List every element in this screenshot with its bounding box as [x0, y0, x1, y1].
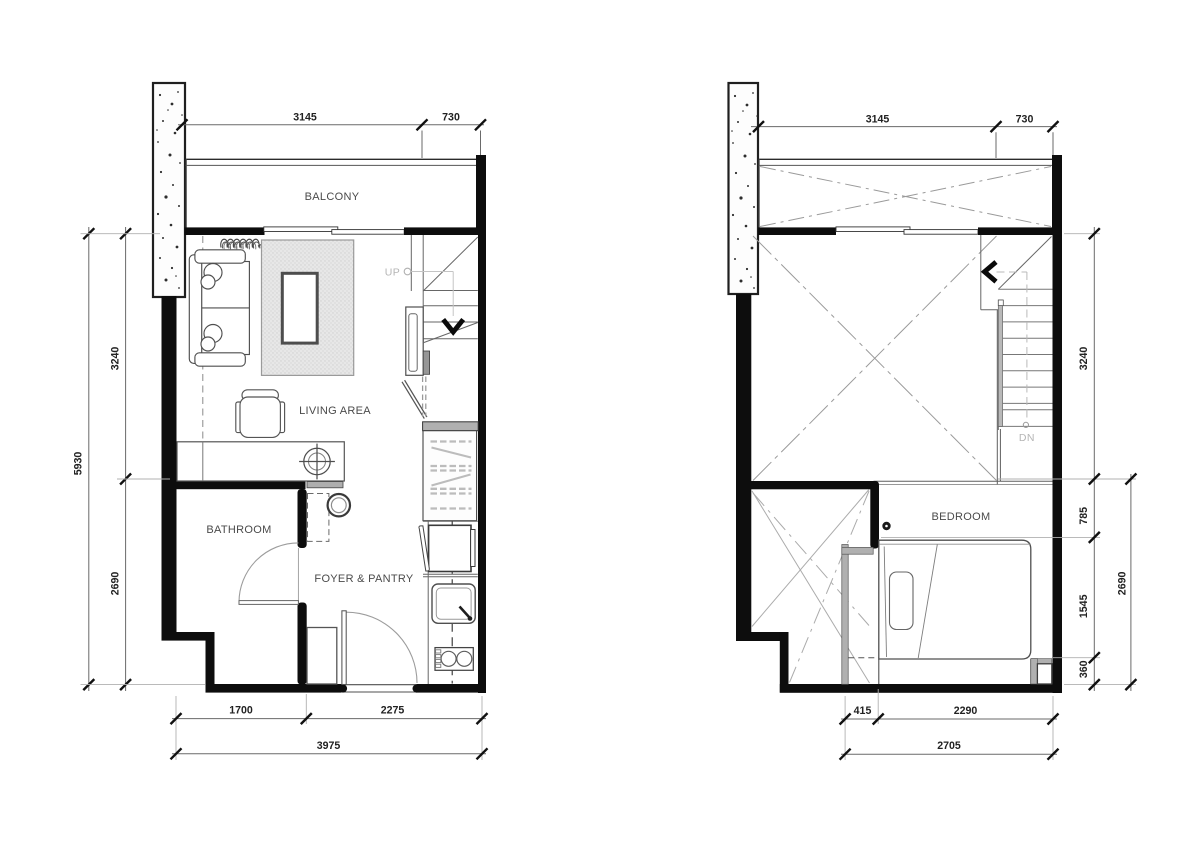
svg-text:3240: 3240 — [109, 347, 121, 371]
svg-text:FOYER & PANTRY: FOYER & PANTRY — [314, 573, 414, 585]
svg-text:BEDROOM: BEDROOM — [932, 511, 991, 523]
svg-text:2690: 2690 — [1117, 572, 1129, 596]
svg-text:360: 360 — [1078, 660, 1090, 678]
svg-text:2690: 2690 — [109, 572, 121, 596]
svg-text:415: 415 — [854, 705, 872, 717]
svg-text:3240: 3240 — [1078, 347, 1090, 371]
svg-text:BATHROOM: BATHROOM — [206, 524, 271, 536]
svg-text:5930: 5930 — [73, 452, 85, 476]
svg-text:2705: 2705 — [937, 740, 961, 752]
svg-text:730: 730 — [1016, 113, 1034, 125]
svg-text:DN: DN — [1019, 432, 1035, 444]
svg-text:UP: UP — [385, 267, 400, 279]
svg-text:BALCONY: BALCONY — [305, 191, 360, 203]
svg-text:3145: 3145 — [293, 112, 317, 124]
svg-text:1545: 1545 — [1078, 594, 1090, 618]
svg-text:3975: 3975 — [317, 740, 341, 752]
svg-text:785: 785 — [1078, 507, 1090, 525]
svg-text:730: 730 — [442, 112, 460, 124]
svg-text:3145: 3145 — [866, 113, 890, 125]
svg-text:2290: 2290 — [954, 705, 978, 717]
svg-text:LIVING AREA: LIVING AREA — [299, 405, 371, 417]
svg-text:1700: 1700 — [229, 705, 253, 717]
svg-text:2275: 2275 — [381, 705, 405, 717]
